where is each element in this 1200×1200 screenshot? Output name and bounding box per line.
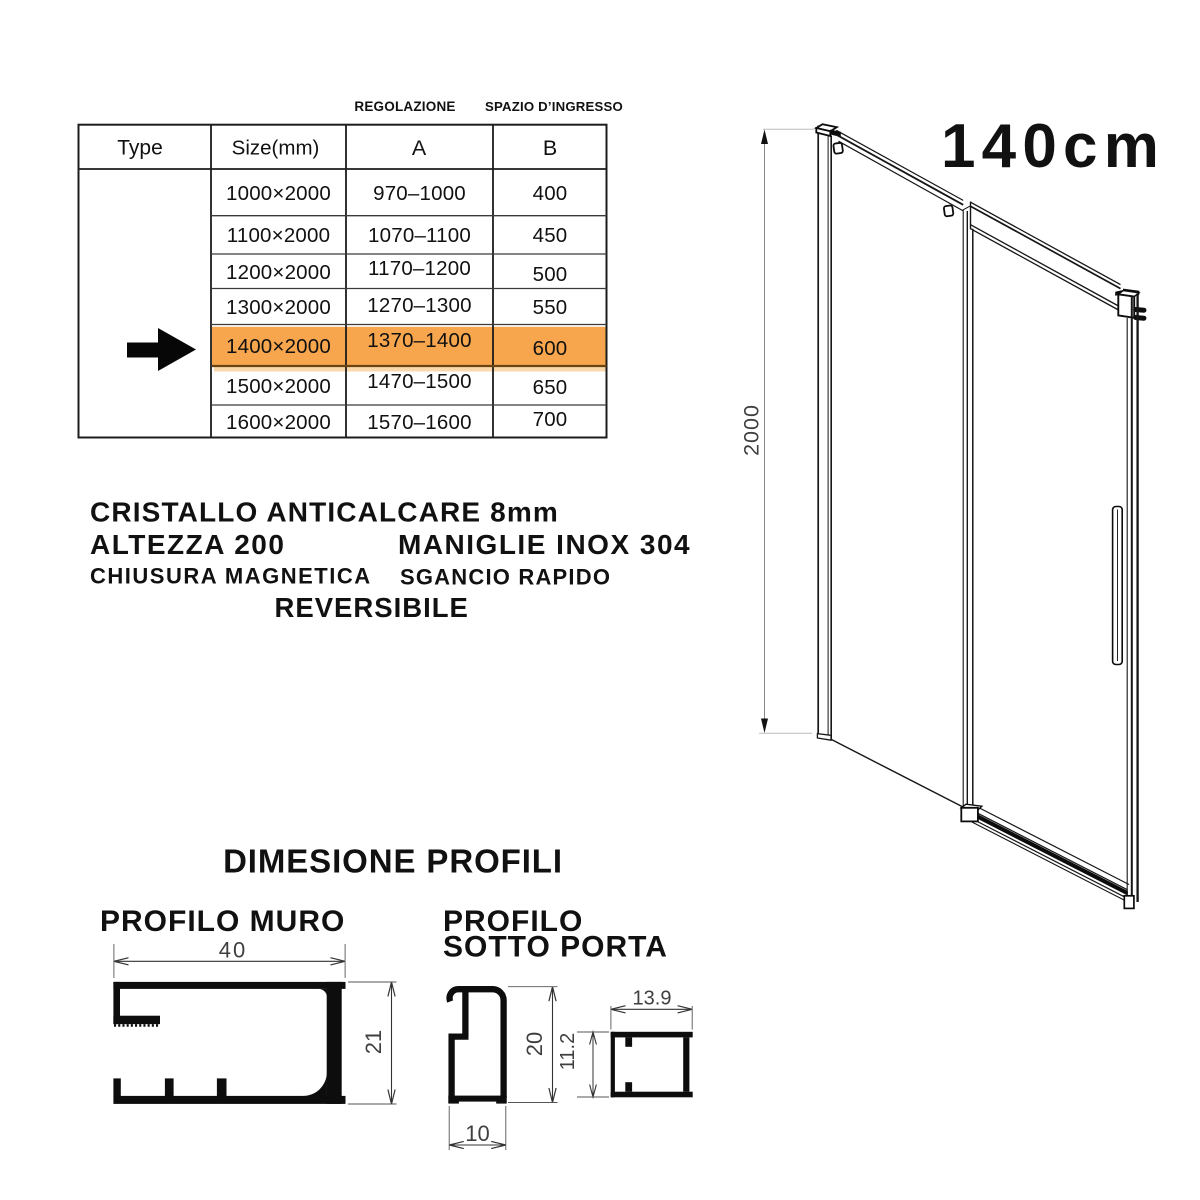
svg-text:21: 21 (361, 1030, 386, 1054)
svg-text:DIMESIONE PROFILI: DIMESIONE PROFILI (223, 843, 563, 880)
svg-text:20: 20 (522, 1032, 547, 1056)
svg-text:2000: 2000 (740, 404, 764, 456)
svg-text:700: 700 (533, 408, 568, 431)
svg-text:650: 650 (533, 376, 568, 399)
svg-text:SOTTO PORTA: SOTTO PORTA (443, 931, 668, 964)
svg-text:550: 550 (533, 296, 568, 319)
svg-text:1200×2000: 1200×2000 (226, 261, 331, 284)
svg-text:REVERSIBILE: REVERSIBILE (275, 592, 469, 623)
svg-text:Size(mm): Size(mm) (232, 137, 320, 160)
svg-text:140cm: 140cm (941, 112, 1165, 181)
svg-text:1000×2000: 1000×2000 (226, 182, 331, 205)
svg-text:A: A (412, 136, 427, 160)
svg-text:970–1000: 970–1000 (373, 182, 466, 205)
svg-text:10: 10 (465, 1121, 489, 1146)
svg-text:600: 600 (533, 337, 568, 360)
svg-text:1100×2000: 1100×2000 (227, 224, 330, 247)
svg-text:40: 40 (219, 938, 247, 963)
svg-text:REGOLAZIONE: REGOLAZIONE (354, 99, 455, 114)
svg-text:400: 400 (533, 182, 568, 205)
svg-text:1300×2000: 1300×2000 (226, 296, 331, 319)
svg-text:1370–1400: 1370–1400 (367, 329, 471, 352)
svg-text:MANIGLIE INOX 304: MANIGLIE INOX 304 (398, 529, 691, 560)
svg-text:1170–1200: 1170–1200 (368, 257, 471, 280)
svg-text:450: 450 (533, 224, 568, 247)
svg-text:1070–1100: 1070–1100 (368, 224, 471, 247)
svg-text:500: 500 (533, 263, 568, 286)
svg-text:11.2: 11.2 (557, 1033, 579, 1070)
svg-text:SGANCIO RAPIDO: SGANCIO RAPIDO (400, 565, 611, 590)
svg-text:ALTEZZA 200: ALTEZZA 200 (90, 529, 285, 560)
svg-text:B: B (543, 136, 557, 160)
svg-text:1600×2000: 1600×2000 (226, 411, 331, 434)
svg-text:CRISTALLO ANTICALCARE 8mm: CRISTALLO ANTICALCARE 8mm (90, 497, 559, 528)
svg-text:1570–1600: 1570–1600 (367, 411, 471, 434)
svg-text:1470–1500: 1470–1500 (367, 370, 471, 393)
svg-text:13.9: 13.9 (633, 988, 672, 1010)
svg-text:1270–1300: 1270–1300 (367, 294, 471, 317)
svg-text:PROFILO MURO: PROFILO MURO (100, 905, 345, 938)
svg-text:Type: Type (117, 137, 163, 160)
svg-text:CHIUSURA MAGNETICA: CHIUSURA MAGNETICA (90, 564, 372, 589)
svg-text:SPAZIO D’INGRESSO: SPAZIO D’INGRESSO (485, 99, 623, 114)
svg-text:1500×2000: 1500×2000 (226, 375, 331, 398)
svg-text:1400×2000: 1400×2000 (226, 335, 331, 358)
